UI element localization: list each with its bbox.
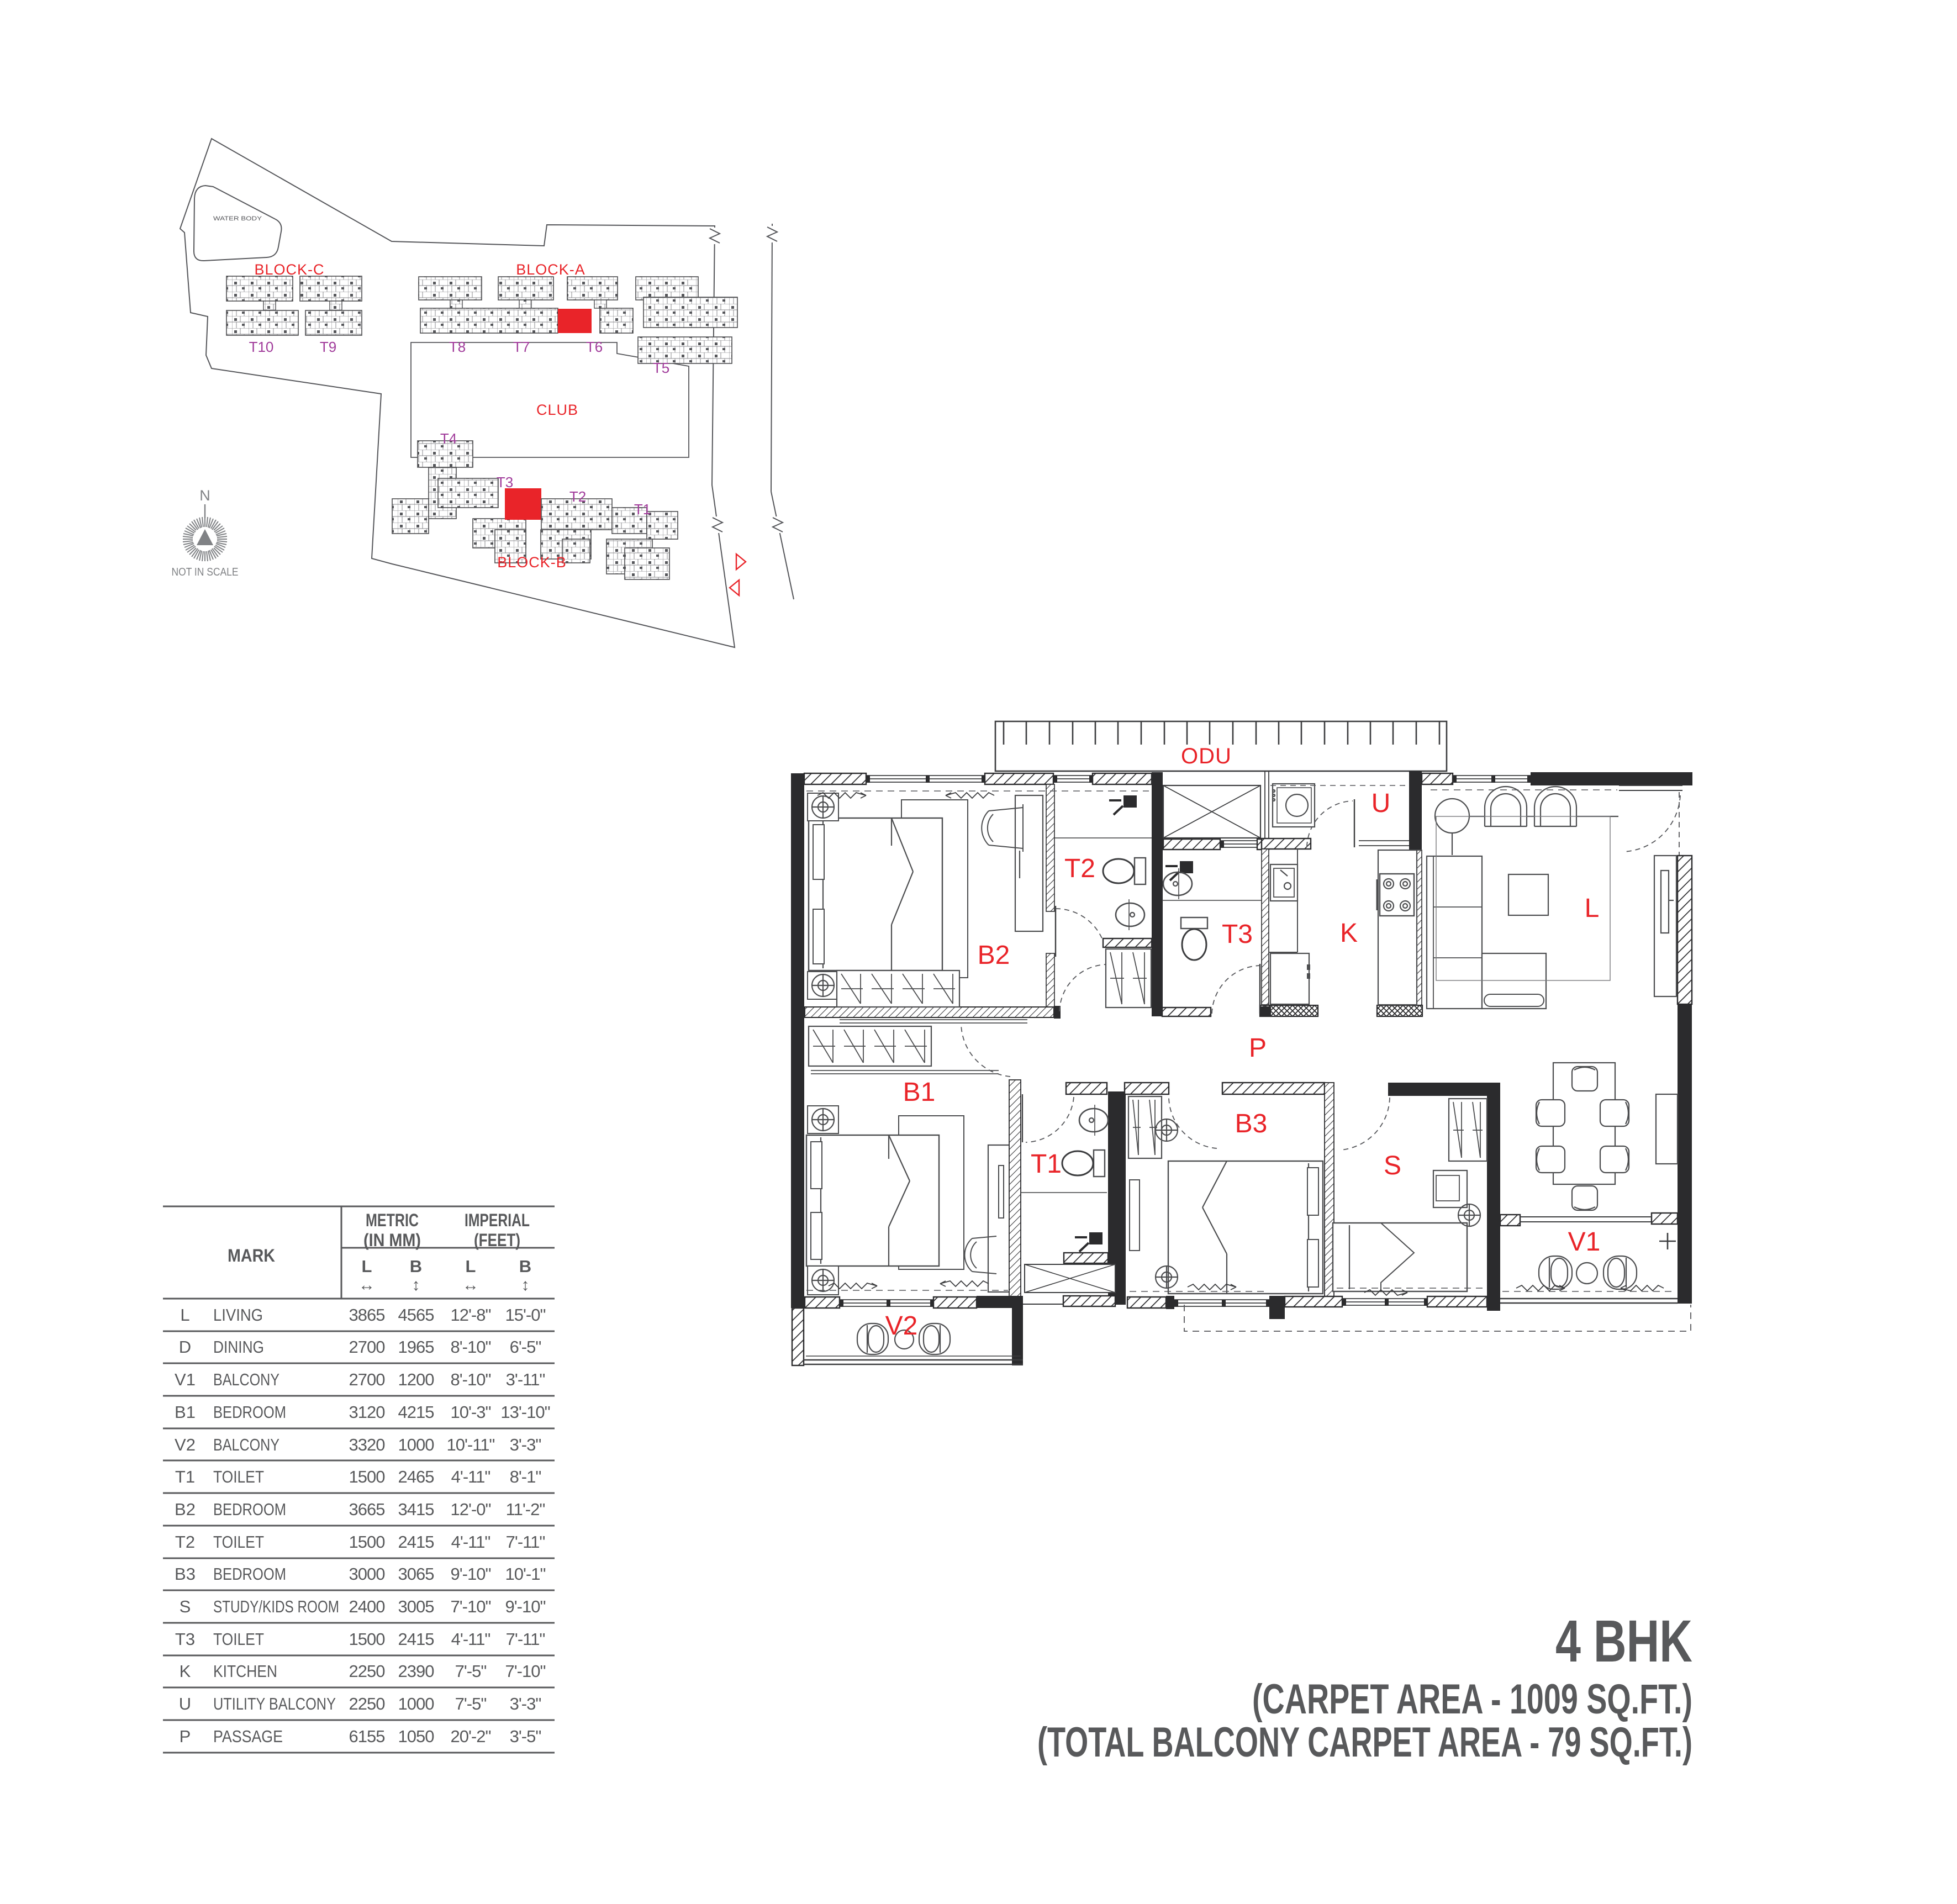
svg-text:4'-11": 4'-11" — [451, 1629, 490, 1649]
svg-text:4565: 4565 — [398, 1305, 434, 1325]
svg-text:↔: ↔ — [358, 1276, 375, 1294]
svg-text:STUDY/KIDS ROOM: STUDY/KIDS ROOM — [213, 1597, 339, 1616]
svg-text:11'-2": 11'-2" — [506, 1500, 545, 1519]
svg-text:T3: T3 — [175, 1629, 195, 1649]
svg-text:ODU: ODU — [1181, 744, 1232, 768]
svg-text:PASSAGE: PASSAGE — [213, 1727, 283, 1746]
svg-text:10'-3": 10'-3" — [451, 1402, 491, 1422]
svg-text:TOILET: TOILET — [213, 1467, 264, 1486]
svg-text:T2: T2 — [569, 488, 586, 505]
svg-text:T8: T8 — [449, 339, 466, 355]
svg-text:20'-2": 20'-2" — [451, 1727, 491, 1746]
svg-text:2390: 2390 — [398, 1662, 435, 1681]
svg-text:T2: T2 — [1064, 854, 1095, 883]
svg-text:12'-8": 12'-8" — [451, 1305, 491, 1325]
svg-text:1000: 1000 — [398, 1435, 435, 1454]
svg-text:3665: 3665 — [349, 1500, 385, 1519]
svg-text:BALCONY: BALCONY — [213, 1435, 279, 1454]
svg-text:2250: 2250 — [349, 1694, 386, 1713]
svg-text:3'-5": 3'-5" — [510, 1727, 541, 1746]
svg-text:↕: ↕ — [412, 1276, 420, 1294]
svg-text:T7: T7 — [513, 339, 530, 355]
svg-text:3'-11": 3'-11" — [506, 1370, 545, 1389]
svg-text:1050: 1050 — [398, 1727, 435, 1746]
svg-text:T9: T9 — [320, 339, 336, 355]
svg-text:METRIC: METRIC — [366, 1210, 419, 1230]
svg-text:7'-5": 7'-5" — [455, 1662, 487, 1681]
svg-text:1000: 1000 — [398, 1694, 435, 1713]
svg-text:KITCHEN: KITCHEN — [213, 1662, 277, 1681]
svg-text:K: K — [180, 1662, 191, 1681]
svg-text:NOT IN SCALE: NOT IN SCALE — [172, 566, 239, 578]
svg-text:B2: B2 — [175, 1500, 196, 1519]
svg-text:3120: 3120 — [349, 1402, 386, 1422]
svg-text:U: U — [1372, 789, 1391, 818]
svg-text:B2: B2 — [978, 941, 1010, 970]
svg-text:T1: T1 — [1031, 1149, 1062, 1179]
svg-text:4'-11": 4'-11" — [451, 1532, 490, 1552]
svg-text:V2: V2 — [175, 1435, 196, 1454]
svg-text:LIVING: LIVING — [213, 1305, 263, 1325]
svg-text:K: K — [1340, 919, 1358, 948]
svg-text:7'-10": 7'-10" — [451, 1597, 491, 1616]
svg-text:9'-10": 9'-10" — [451, 1564, 491, 1584]
svg-text:BEDROOM: BEDROOM — [213, 1402, 286, 1422]
svg-text:↔: ↔ — [462, 1276, 479, 1294]
svg-text:7'-5": 7'-5" — [455, 1694, 487, 1713]
svg-text:BEDROOM: BEDROOM — [213, 1564, 286, 1584]
svg-text:3865: 3865 — [349, 1305, 385, 1325]
svg-text:V1: V1 — [175, 1370, 196, 1389]
svg-text:8'-10": 8'-10" — [451, 1337, 491, 1357]
svg-text:T6: T6 — [586, 339, 603, 355]
svg-text:T2: T2 — [175, 1532, 195, 1552]
svg-text:N: N — [199, 487, 210, 504]
svg-text:2700: 2700 — [349, 1370, 386, 1389]
svg-text:8'-10": 8'-10" — [451, 1370, 491, 1389]
svg-text:3'-3": 3'-3" — [510, 1435, 541, 1454]
svg-text:T1: T1 — [634, 501, 651, 518]
svg-text:DINING: DINING — [213, 1337, 264, 1357]
svg-text:(FEET): (FEET) — [474, 1230, 520, 1250]
svg-text:T3: T3 — [497, 474, 513, 490]
svg-text:BALCONY: BALCONY — [213, 1370, 279, 1389]
svg-text:6155: 6155 — [349, 1727, 385, 1746]
svg-text:MARK: MARK — [228, 1246, 275, 1265]
svg-text:7'-10": 7'-10" — [505, 1662, 546, 1681]
svg-text:CLUB: CLUB — [536, 402, 578, 418]
svg-text:2465: 2465 — [398, 1467, 434, 1486]
svg-text:V1: V1 — [1568, 1227, 1601, 1257]
svg-text:BEDROOM: BEDROOM — [213, 1500, 286, 1519]
svg-text:B1: B1 — [903, 1078, 936, 1107]
svg-text:IMPERIAL: IMPERIAL — [465, 1210, 530, 1230]
svg-text:U: U — [179, 1694, 191, 1713]
svg-text:2250: 2250 — [349, 1662, 386, 1681]
svg-text:L: L — [362, 1257, 372, 1276]
svg-text:2415: 2415 — [398, 1532, 434, 1552]
svg-text:TOILET: TOILET — [213, 1532, 264, 1552]
svg-text:T10: T10 — [249, 339, 274, 355]
svg-text:4 BHK: 4 BHK — [1555, 1607, 1692, 1674]
svg-text:B3: B3 — [1235, 1109, 1268, 1138]
svg-text:(TOTAL BALCONY CARPET AREA - 7: (TOTAL BALCONY CARPET AREA - 79 SQ.FT.) — [1037, 1719, 1692, 1766]
svg-text:7'-11": 7'-11" — [506, 1532, 545, 1552]
svg-text:B: B — [410, 1257, 422, 1276]
svg-text:L: L — [180, 1305, 189, 1325]
svg-text:3005: 3005 — [398, 1597, 434, 1616]
svg-text:10'-11": 10'-11" — [447, 1435, 495, 1454]
svg-text:S: S — [180, 1597, 191, 1616]
svg-text:TOILET: TOILET — [213, 1629, 264, 1649]
svg-text:10'-1": 10'-1" — [505, 1564, 546, 1584]
svg-text:T5: T5 — [653, 360, 669, 376]
svg-text:T1: T1 — [175, 1467, 195, 1486]
svg-text:T4: T4 — [440, 430, 457, 447]
svg-text:B: B — [519, 1257, 531, 1276]
svg-text:9'-10": 9'-10" — [505, 1597, 546, 1616]
svg-text:4215: 4215 — [398, 1402, 434, 1422]
svg-text:2400: 2400 — [349, 1597, 386, 1616]
svg-text:BLOCK-A: BLOCK-A — [516, 261, 585, 278]
svg-text:B1: B1 — [175, 1402, 196, 1422]
svg-text:8'-1": 8'-1" — [510, 1467, 541, 1486]
svg-text:7'-11": 7'-11" — [506, 1629, 545, 1649]
svg-text:1965: 1965 — [398, 1337, 434, 1357]
svg-text:3'-3": 3'-3" — [510, 1694, 541, 1713]
svg-text:3000: 3000 — [349, 1564, 386, 1584]
svg-text:V2: V2 — [885, 1311, 918, 1341]
svg-text:(IN MM): (IN MM) — [363, 1230, 421, 1250]
svg-text:1500: 1500 — [349, 1532, 386, 1552]
svg-text:6'-5": 6'-5" — [510, 1337, 541, 1357]
svg-text:WATER BODY: WATER BODY — [213, 215, 262, 222]
svg-text:1500: 1500 — [349, 1629, 386, 1649]
svg-text:3415: 3415 — [398, 1500, 434, 1519]
svg-text:L: L — [1585, 894, 1600, 923]
svg-text:P: P — [180, 1727, 191, 1746]
svg-text:2700: 2700 — [349, 1337, 386, 1357]
svg-text:T3: T3 — [1222, 920, 1253, 949]
svg-text:3320: 3320 — [349, 1435, 386, 1454]
svg-text:D: D — [179, 1337, 191, 1357]
svg-text:L: L — [466, 1257, 476, 1276]
svg-text:P: P — [1249, 1033, 1267, 1063]
svg-text:B3: B3 — [175, 1564, 196, 1584]
svg-text:(CARPET AREA - 1009 SQ.FT.): (CARPET AREA - 1009 SQ.FT.) — [1252, 1676, 1692, 1723]
svg-text:13'-10": 13'-10" — [500, 1402, 550, 1422]
svg-text:3065: 3065 — [398, 1564, 434, 1584]
svg-text:1200: 1200 — [398, 1370, 435, 1389]
svg-text:BLOCK-B: BLOCK-B — [497, 554, 567, 571]
svg-text:S: S — [1384, 1151, 1401, 1180]
svg-text:BLOCK-C: BLOCK-C — [254, 261, 324, 278]
svg-text:15'-0": 15'-0" — [505, 1305, 546, 1325]
svg-text:2415: 2415 — [398, 1629, 434, 1649]
svg-text:1500: 1500 — [349, 1467, 386, 1486]
svg-text:UTILITY BALCONY: UTILITY BALCONY — [213, 1694, 336, 1713]
svg-text:↕: ↕ — [521, 1276, 530, 1294]
svg-text:4'-11": 4'-11" — [451, 1467, 490, 1486]
svg-text:12'-0": 12'-0" — [451, 1500, 491, 1519]
